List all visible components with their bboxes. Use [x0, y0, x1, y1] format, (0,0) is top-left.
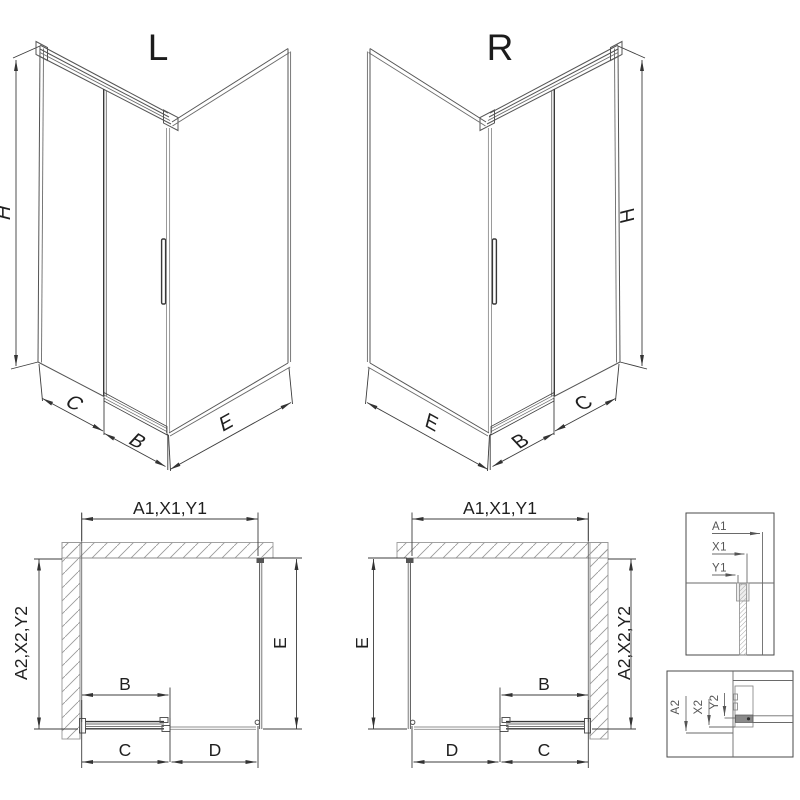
dim-label-height-right: H: [617, 206, 639, 226]
plan-left-dim-right: E: [270, 637, 290, 649]
wall-side-hatch-right-plan: [590, 543, 608, 740]
door-rail-section: [736, 715, 754, 723]
detail-label-x2: X2: [693, 699, 705, 714]
shower-enclosure-technical-drawing: L H C B E R H C B E A1,X1,Y1 A2,X2,Y2 E …: [0, 0, 800, 800]
dim-label-height-left: H: [0, 203, 15, 223]
dim-label-fixed-right: C: [570, 392, 598, 415]
wall-profile-hatch: [740, 584, 747, 655]
wall-top-hatch-left-plan: [62, 543, 273, 559]
drawing-canvas: L H C B E R H C B E A1,X1,Y1 A2,X2,Y2 E …: [0, 0, 800, 800]
plan-view-right: A1,X1,Y1 E A2,X2,Y2 B D C: [352, 498, 636, 768]
detail-label-a2: A2: [670, 699, 682, 714]
plan-left-dim-left: A2,X2,Y2: [11, 606, 31, 680]
plan-right-dim-door: B: [538, 674, 550, 694]
isometric-view-right: R H C B E: [366, 27, 648, 471]
dim-label-fixed-left: C: [60, 392, 88, 415]
detail-label-a1: A1: [712, 521, 727, 533]
wall-top-hatch-right-plan: [397, 543, 608, 559]
plan-left-dim-top: A1,X1,Y1: [133, 498, 207, 518]
plan-right-dim-left: E: [352, 637, 372, 649]
plan-right-dim-right: A2,X2,Y2: [614, 606, 634, 680]
view-label-left: L: [148, 27, 169, 68]
detail-label-x1: X1: [712, 542, 727, 554]
dim-label-side-right: E: [423, 409, 440, 437]
plan-right-dim-top: A1,X1,Y1: [463, 498, 537, 518]
roller-section: [747, 717, 750, 720]
plan-view-left: A1,X1,Y1 A2,X2,Y2 E B C D: [11, 498, 302, 768]
detail-view-top: A1 X1 Y1: [686, 513, 774, 655]
iso-left-geometry: [11, 42, 293, 472]
plan-right-dim-c: C: [538, 740, 551, 760]
plan-left-dim-c: C: [119, 740, 132, 760]
wall-side-hatch-left-plan: [62, 543, 80, 740]
plan-right-dim-d: D: [446, 740, 459, 760]
detail-label-y1: Y1: [712, 563, 727, 575]
iso-right-geometry: [366, 42, 648, 472]
detail-label-y2: Y2: [709, 694, 721, 709]
dim-label-door-right: B: [507, 430, 534, 453]
plan-left-dim-d: D: [209, 740, 222, 760]
isometric-view-left: L H C B E: [0, 27, 292, 471]
detail-view-bottom: A2 X2 Y2: [667, 671, 793, 757]
dim-label-door-left: B: [124, 430, 151, 453]
view-label-right: R: [487, 27, 514, 68]
plan-left-dim-door: B: [119, 674, 131, 694]
dim-label-side-left: E: [218, 409, 235, 437]
